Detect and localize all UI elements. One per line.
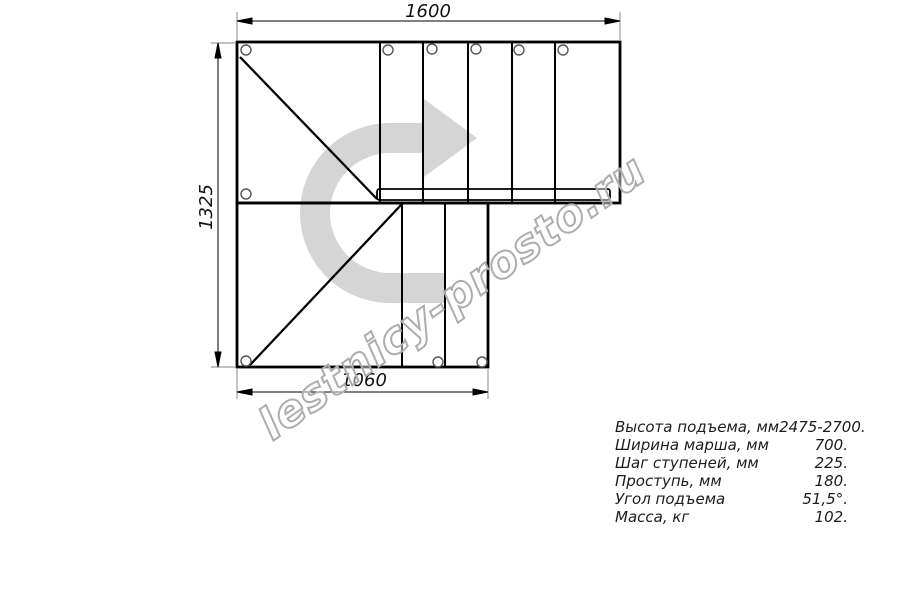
stringer-beam bbox=[377, 189, 610, 200]
post-hole-circle bbox=[433, 357, 443, 367]
spec-value: 2475-2700. bbox=[779, 419, 866, 437]
dim-arrowhead bbox=[237, 18, 252, 24]
spec-row-climb-angle: Угол подъема 51,5°. bbox=[615, 491, 848, 509]
post-hole-circle bbox=[383, 45, 393, 55]
direction-arrow-icon bbox=[300, 99, 477, 303]
spec-value: 180. bbox=[815, 473, 848, 491]
dimension-label-left: 1325 bbox=[198, 172, 216, 242]
post-hole-circle bbox=[241, 45, 251, 55]
spec-label: Угол подъема bbox=[615, 491, 725, 509]
dimension-label-top: 1600 bbox=[393, 3, 463, 21]
spec-row-step-pitch: Шаг ступеней, мм 225. bbox=[615, 455, 848, 473]
spec-value: 700. bbox=[815, 437, 848, 455]
spec-label: Масса, кг bbox=[615, 509, 689, 527]
spec-label: Шаг ступеней, мм bbox=[615, 455, 759, 473]
dim-arrowhead bbox=[473, 389, 488, 395]
dim-arrowhead bbox=[605, 18, 620, 24]
spec-value: 102. bbox=[815, 509, 848, 527]
post-hole-circle bbox=[477, 357, 487, 367]
post-hole-circle bbox=[558, 45, 568, 55]
spec-value: 225. bbox=[815, 455, 848, 473]
post-hole-circle bbox=[471, 44, 481, 54]
stair-drawing-canvas: 1600 1325 1060 lestnicy-prosto.ru Высота… bbox=[0, 0, 900, 600]
spec-row-flight-width: Ширина марша, мм 700. bbox=[615, 437, 848, 455]
spec-label: Высота подъема, мм bbox=[615, 419, 779, 437]
dim-arrowhead bbox=[215, 43, 221, 58]
spec-row-tread: Проступь, мм 180. bbox=[615, 473, 848, 491]
spec-row-rise-height: Высота подъема, мм 2475-2700. bbox=[615, 419, 848, 437]
spec-table: Высота подъема, мм 2475-2700. Ширина мар… bbox=[615, 419, 848, 526]
dimension-label-bottom: 1060 bbox=[329, 372, 399, 390]
spec-label: Проступь, мм bbox=[615, 473, 722, 491]
post-hole-circle bbox=[514, 45, 524, 55]
spec-row-mass: Масса, кг 102. bbox=[615, 509, 848, 527]
spec-value: 51,5°. bbox=[802, 491, 848, 509]
post-hole-circle bbox=[241, 189, 251, 199]
dim-arrowhead bbox=[237, 389, 252, 395]
post-hole-circle bbox=[427, 44, 437, 54]
post-hole-circle bbox=[241, 356, 251, 366]
dim-arrowhead bbox=[215, 352, 221, 367]
spec-label: Ширина марша, мм bbox=[615, 437, 769, 455]
